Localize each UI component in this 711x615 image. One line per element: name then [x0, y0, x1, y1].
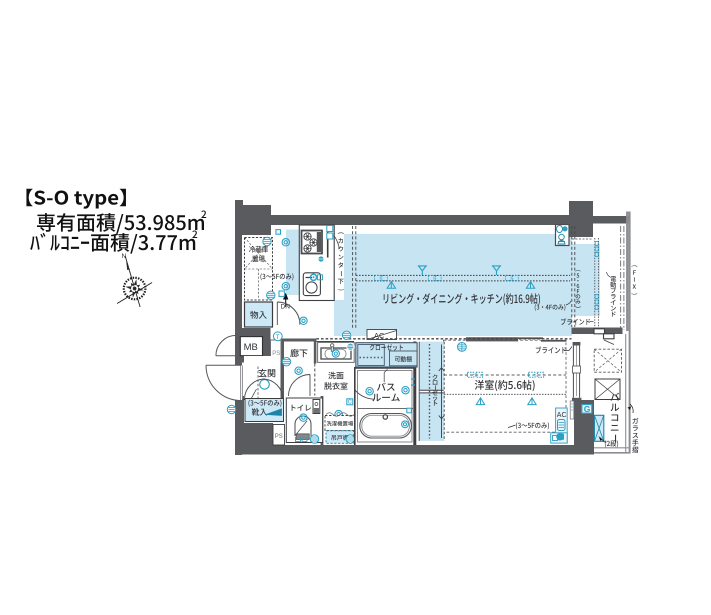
- svg-text:AC: AC: [557, 412, 567, 419]
- svg-text:N: N: [122, 253, 127, 260]
- svg-text:PS: PS: [275, 434, 283, 440]
- svg-text:MB: MB: [244, 342, 258, 353]
- svg-text:G: G: [584, 404, 591, 414]
- svg-text:C: C: [348, 400, 352, 406]
- svg-text:T: T: [276, 334, 280, 341]
